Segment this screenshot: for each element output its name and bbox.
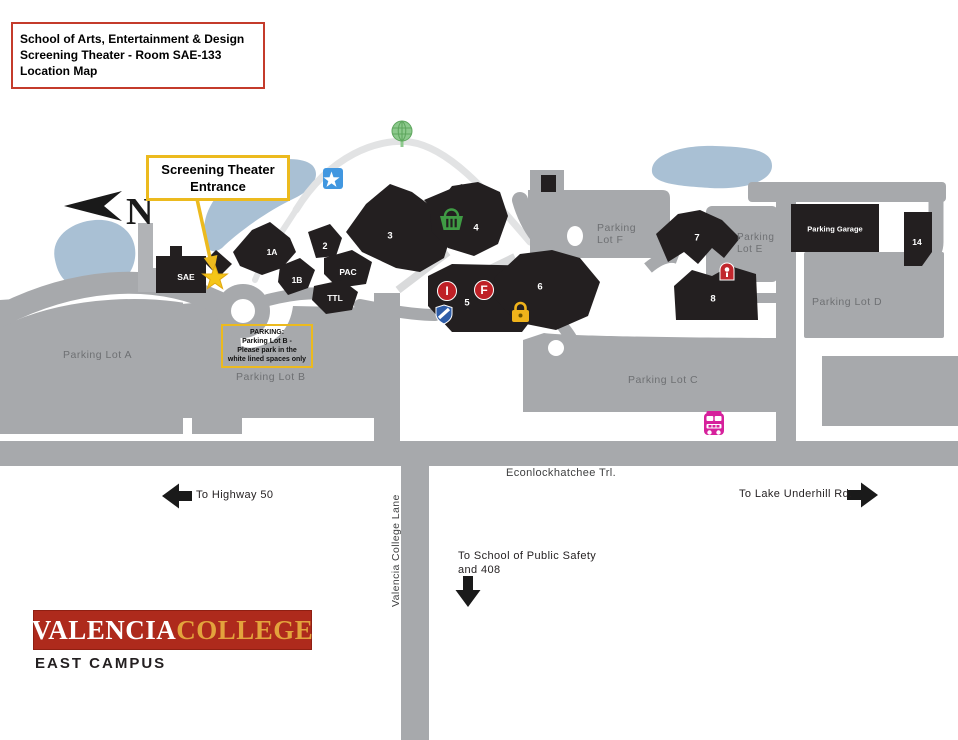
valencia-college-lane-road <box>401 466 429 740</box>
road-vertical-center <box>374 293 400 453</box>
campus-map-page: { "title_box": { "line1": "School of Art… <box>0 0 958 740</box>
to-public-safety-line1: To School of Public Safety <box>458 549 598 563</box>
information-badge-letter: I <box>445 284 448 298</box>
label-parking-garage: Parking Garage <box>807 225 862 234</box>
map-title-line3: Location Map <box>20 63 258 79</box>
label-sae: SAE <box>177 272 195 282</box>
parking-lot-e-line1: Parking <box>737 232 774 244</box>
label-3: 3 <box>387 231 392 242</box>
f-badge-icon: F <box>475 281 494 300</box>
label-1a: 1A <box>267 247 278 257</box>
parking-lot-f-label: Parking Lot F <box>597 223 636 246</box>
valencia-college-logo: VALENCIACOLLEGE <box>33 610 312 650</box>
parking-lot-f-line2: Lot F <box>597 235 636 247</box>
logo-college-text: COLLEGE <box>176 615 313 646</box>
label-6: 6 <box>537 282 542 293</box>
building-8 <box>674 266 758 320</box>
parking-lot-e-line2: Lot E <box>737 244 774 256</box>
entrance-callout-box: Screening Theater Entrance <box>146 155 290 201</box>
map-title-box: School of Arts, Entertainment & Design S… <box>11 22 265 89</box>
parking-lot-d-label: Parking Lot D <box>812 296 882 308</box>
parking-lot-b-label: Parking Lot B <box>236 371 306 383</box>
logo-valencia-text: VALENCIA <box>32 615 177 646</box>
parking-callout-line4: white lined spaces only <box>224 355 310 364</box>
campus-star-tile-icon <box>323 168 343 189</box>
building-small-north <box>541 175 556 192</box>
lot-f-island <box>567 226 583 246</box>
map-title-line1: School of Arts, Entertainment & Design <box>20 31 258 47</box>
to-public-safety-label: To School of Public Safety and 408 <box>458 549 598 577</box>
to-public-safety-line2: and 408 <box>458 563 598 577</box>
label-ttl: TTL <box>327 293 343 303</box>
entrance-callout-line1: Screening Theater <box>151 161 285 178</box>
label-5: 5 <box>464 298 470 309</box>
lot-c-island <box>548 340 564 356</box>
information-badge-icon: I <box>438 282 457 301</box>
label-pac: PAC <box>339 267 356 277</box>
parking-callout-line3: Please park in the <box>224 346 310 355</box>
building-sae-tab <box>170 246 182 256</box>
entrance-callout-line2: Entrance <box>151 178 285 195</box>
econlockhatchee-label: Econlockhatchee Trl. <box>506 467 616 479</box>
parking-callout-line1: PARKING: <box>224 328 310 337</box>
label-2: 2 <box>322 241 327 251</box>
parking-callout-box: PARKING: Parking Lot B - Please park in … <box>221 324 313 368</box>
arrow-down-icon <box>456 576 481 607</box>
f-badge-letter: F <box>480 283 487 297</box>
label-4: 4 <box>473 223 479 234</box>
valencia-college-lane-label: Valencia College Lane <box>390 497 402 607</box>
pond-right <box>652 146 772 188</box>
parking-lot-d-area <box>804 252 944 338</box>
to-highway-50-label: To Highway 50 <box>196 489 273 501</box>
direction-arrows <box>162 483 878 608</box>
parking-lot-c-label: Parking Lot C <box>628 374 698 386</box>
parking-lot-a-label: Parking Lot A <box>63 349 132 361</box>
label-1b: 1B <box>292 275 303 285</box>
map-title-line2: Screening Theater - Room SAE-133 <box>20 47 258 63</box>
bus-stop-icon <box>704 411 724 435</box>
label-7: 7 <box>694 233 699 244</box>
roundabout-island <box>231 299 255 323</box>
east-campus-label: EAST CAMPUS <box>35 655 166 672</box>
arrow-left-icon <box>162 484 192 509</box>
parking-lot-f-line1: Parking <box>597 223 636 235</box>
security-badge-icon <box>720 263 734 280</box>
parking-callout-line2: Parking Lot B - <box>224 337 310 346</box>
lot-southeast-area <box>822 356 958 426</box>
label-8: 8 <box>710 294 715 305</box>
to-lake-underhill-label: To Lake Underhill Rd. <box>739 488 853 500</box>
main-road <box>0 441 958 466</box>
label-14: 14 <box>912 237 922 247</box>
parking-lot-e-label: Parking Lot E <box>737 232 774 255</box>
